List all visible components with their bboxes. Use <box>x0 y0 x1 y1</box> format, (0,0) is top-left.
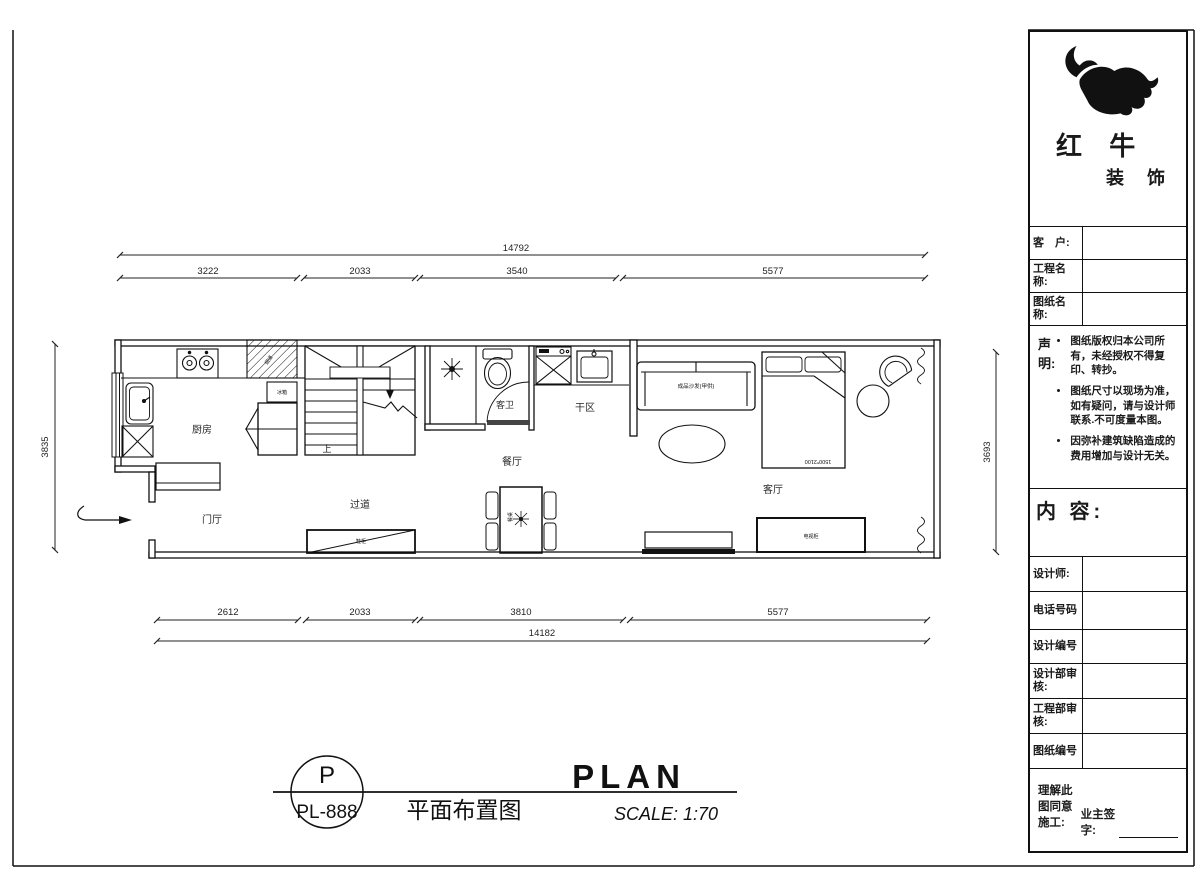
engineering-review-value[interactable] <box>1083 699 1186 733</box>
logo-cell: 红 牛 装 饰 <box>1030 32 1186 226</box>
staircase <box>305 346 417 455</box>
phone-label: 电话号码 <box>1030 592 1083 629</box>
sofa-label: 成品沙发(甲供) <box>678 382 715 390</box>
statement-box: 声明: 图纸版权归本公司所有，未经授权不得复印、转抄。 图纸尺寸以现场为准，如有… <box>1030 325 1186 488</box>
dim-left-height: 3835 <box>40 436 51 457</box>
phone-row: 电话号码 <box>1030 591 1186 629</box>
dim-top-3: 3540 <box>506 266 527 277</box>
room-label-foyer: 门厅 <box>202 513 222 526</box>
content-label: 内 容: <box>1036 495 1104 550</box>
agree-label: 理解此图同意施工: <box>1038 782 1081 838</box>
statement-item: 图纸尺寸以现场为准，如有疑问，请与设计师联系.不可度量本图。 <box>1070 384 1180 428</box>
shower-head-icon <box>441 358 463 380</box>
signature-box: 理解此图同意施工: 业主签字: <box>1030 768 1186 851</box>
floor-plan-drawing: 上 烟道 冰箱 <box>0 0 1200 870</box>
dim-bottom-2: 2033 <box>349 607 370 618</box>
drawing-title-cn: 平面布置图 <box>407 797 522 823</box>
drawing-scale: SCALE: 1:70 <box>614 804 718 824</box>
footer-stamp: P PL-888 平面布置图 PLAN SCALE: 1:70 <box>273 756 737 828</box>
title-block: 红 牛 装 饰 客 户: 工程名称: 图纸名称: 声明: 图纸版权归本公司所有，… <box>1028 30 1188 853</box>
drawing-no-value[interactable] <box>1083 734 1186 768</box>
statement-title: 声明: <box>1038 334 1055 473</box>
owner-sign-label: 业主签字: <box>1081 806 1118 838</box>
designer-value[interactable] <box>1083 557 1186 591</box>
drawing-no-label: 图纸编号 <box>1030 734 1083 768</box>
armchair-icon <box>873 350 913 388</box>
drawing-title-en: PLAN <box>572 758 686 795</box>
phone-value[interactable] <box>1083 592 1186 629</box>
stamp-code: PL-888 <box>296 802 357 823</box>
design-no-label: 设计编号 <box>1030 630 1083 663</box>
dining-table-label: 餐桌 <box>507 512 514 522</box>
designer-row: 设计师: <box>1030 556 1186 591</box>
designer-label: 设计师: <box>1030 557 1083 591</box>
shoe-cabinet-label: 鞋柜 <box>356 538 366 545</box>
dim-top-4: 5577 <box>762 266 783 277</box>
statement-item: 图纸版权归本公司所有，未经授权不得复印、转抄。 <box>1070 334 1180 378</box>
dim-bottom-4: 5577 <box>767 607 788 618</box>
engineering-review-row: 工程部审核: <box>1030 698 1186 733</box>
owner-signature-line[interactable] <box>1119 826 1178 838</box>
bed-size-label: 1500*2100 <box>805 458 832 464</box>
fridge-label: 冰箱 <box>277 389 287 396</box>
project-row: 工程名称: <box>1030 259 1186 292</box>
statement-item: 因弥补建筑缺陷造成的费用增加与设计无关。 <box>1070 434 1180 463</box>
customer-row: 客 户: <box>1030 226 1186 259</box>
customer-value[interactable] <box>1083 227 1186 259</box>
window-left <box>112 373 123 457</box>
dim-top-overall: 14792 <box>503 243 529 254</box>
room-label-living: 客厅 <box>763 483 783 496</box>
drawing-name-label: 图纸名称: <box>1030 293 1083 325</box>
project-name-value[interactable] <box>1083 260 1186 292</box>
room-label-corridor: 过道 <box>350 498 370 511</box>
room-label-dry-area: 干区 <box>575 402 595 414</box>
bathroom-fixtures <box>441 346 629 425</box>
statement-list: 图纸版权归本公司所有，未经授权不得复印、转抄。 图纸尺寸以现场为准，如有疑问，请… <box>1055 334 1180 480</box>
brand-name-bottom: 装 饰 <box>1106 164 1174 190</box>
design-review-row: 设计部审核: <box>1030 663 1186 698</box>
dim-bottom-overall: 14182 <box>529 628 555 639</box>
design-review-label: 设计部审核: <box>1030 664 1083 698</box>
design-no-value[interactable] <box>1083 630 1186 663</box>
stamp-letter: P <box>319 762 335 789</box>
dim-right-height: 3693 <box>982 441 993 462</box>
dim-top-1: 3222 <box>197 266 218 277</box>
dim-top-2: 2033 <box>349 266 370 277</box>
drawing-sheet: 上 烟道 冰箱 <box>0 0 1200 870</box>
room-label-dining: 餐厅 <box>502 455 522 468</box>
content-box: 内 容: <box>1030 488 1186 556</box>
walls <box>115 340 940 558</box>
drawing-no-row: 图纸编号 <box>1030 733 1186 768</box>
project-name-label: 工程名称: <box>1030 260 1083 292</box>
design-no-row: 设计编号 <box>1030 629 1186 663</box>
dim-bottom-3: 3810 <box>510 607 531 618</box>
entry-arrow-icon <box>78 506 132 524</box>
room-label-kitchen: 厨房 <box>192 423 212 436</box>
engineering-review-label: 工程部审核: <box>1030 699 1083 733</box>
living-furniture <box>637 348 925 554</box>
dining-set <box>486 487 556 553</box>
design-review-value[interactable] <box>1083 664 1186 698</box>
table-plant-icon <box>513 511 529 527</box>
tv-cabinet-label: 电视柜 <box>803 533 818 540</box>
dim-bottom-1: 2612 <box>217 607 238 618</box>
customer-label: 客 户: <box>1030 227 1083 259</box>
dimension-lines <box>55 255 996 641</box>
stair-up-label: 上 <box>322 444 331 454</box>
room-label-guest-bath: 客卫 <box>496 399 514 410</box>
bull-logo-icon <box>1053 42 1163 122</box>
drawing-name-value[interactable] <box>1083 293 1186 325</box>
drawing-name-row: 图纸名称: <box>1030 292 1186 325</box>
brand-name-top: 红 牛 <box>1046 126 1145 163</box>
sheet-border <box>13 30 1194 866</box>
